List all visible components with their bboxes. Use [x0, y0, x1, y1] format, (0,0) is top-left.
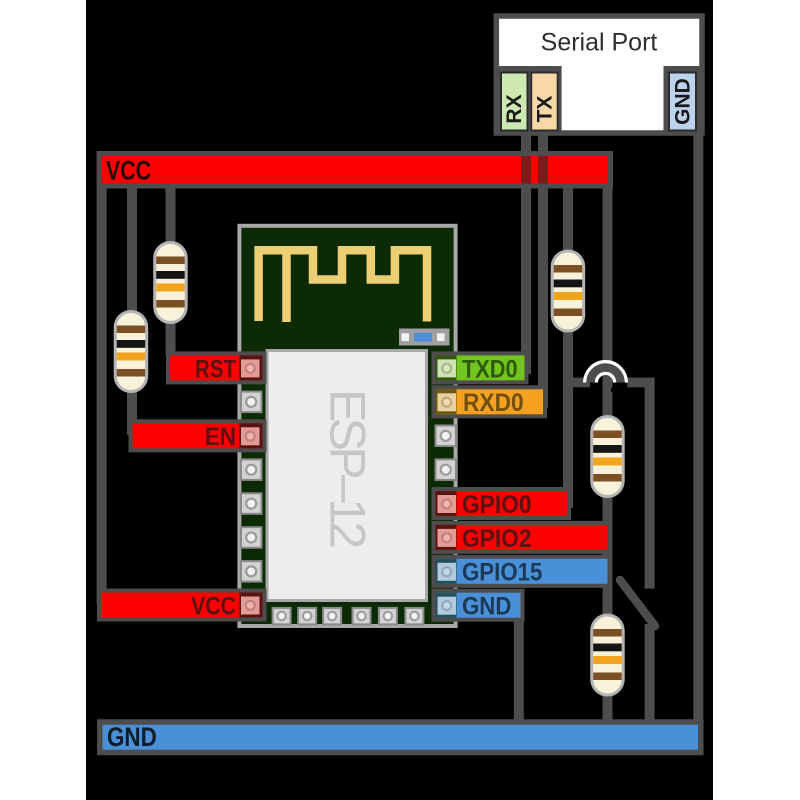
svg-text:RST: RST: [195, 354, 236, 382]
svg-text:RX: RX: [503, 94, 526, 123]
svg-text:GND: GND: [462, 593, 511, 620]
svg-text:GND: GND: [107, 723, 157, 752]
svg-text:VCC: VCC: [191, 592, 236, 620]
svg-text:TXD0: TXD0: [462, 355, 518, 383]
svg-text:GPIO15: GPIO15: [462, 560, 542, 587]
svg-text:VCC: VCC: [106, 156, 151, 186]
svg-text:Serial Port: Serial Port: [541, 29, 658, 57]
svg-text:EN: EN: [205, 423, 236, 451]
svg-text:GPIO2: GPIO2: [462, 525, 532, 553]
svg-text:ESP–12: ESP–12: [320, 389, 376, 549]
svg-text:TX: TX: [534, 96, 557, 123]
svg-text:RXD0: RXD0: [463, 389, 524, 417]
svg-text:GND: GND: [672, 78, 695, 125]
svg-text:GPIO0: GPIO0: [462, 491, 532, 519]
